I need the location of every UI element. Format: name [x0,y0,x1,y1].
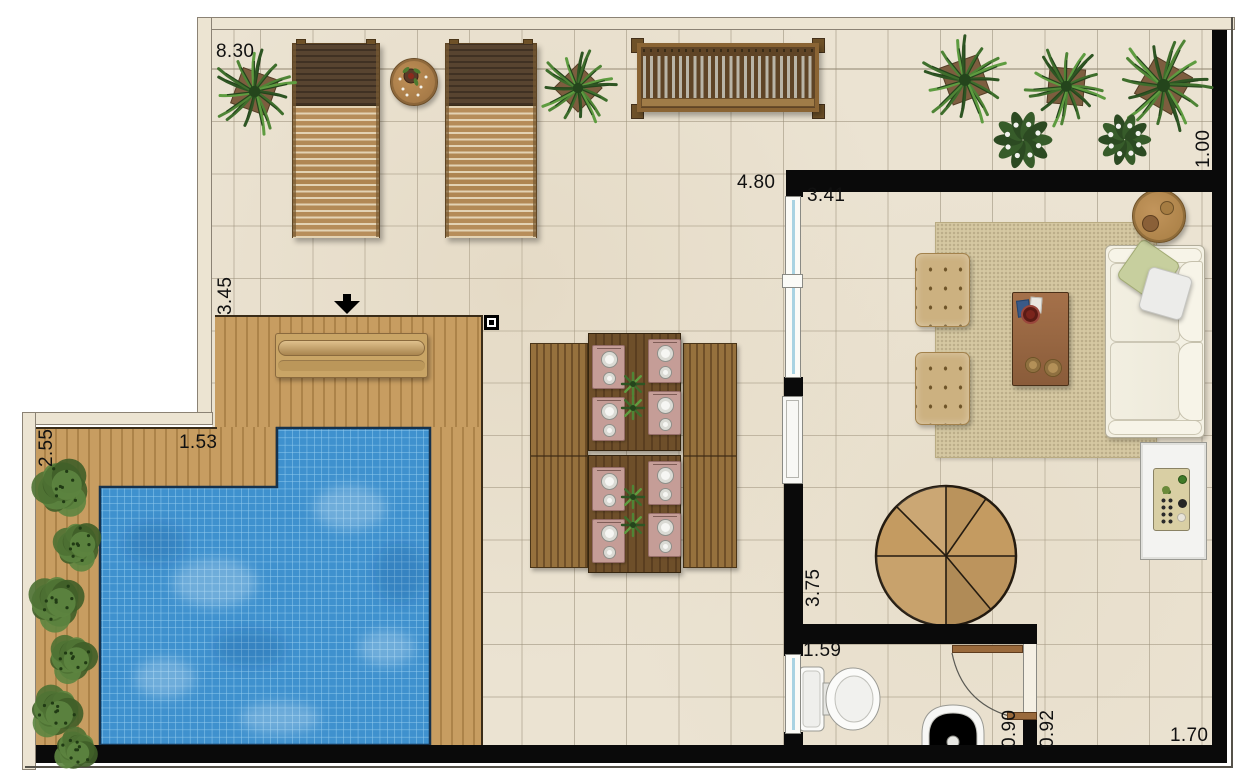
floor-plan-canvas: 8.30 1.00 4.80 3.41 3.45 2.55 1.53 3.75 … [0,0,1250,775]
plate [603,424,616,437]
flowering-plant-icon [1095,110,1154,169]
plate [657,397,674,414]
plate [603,546,616,559]
dim-living-height: 3.75 [804,569,823,607]
dim-top-width: 8.30 [216,42,254,61]
utility-panel [1140,442,1207,560]
plan-border-notch [22,412,213,425]
tray [1021,305,1040,324]
dim-right-offset: 1.00 [1194,130,1213,168]
window-mullion [782,274,803,288]
column-marker-icon [484,315,499,330]
lounger-headrest [293,44,379,106]
swimming-pool [95,423,435,750]
sun-lounger [445,43,537,238]
plan-outline-bottom [25,766,1233,768]
plan-outline-right [1231,17,1233,768]
palm-plant-icon [532,42,624,134]
dining-bench [683,343,737,568]
dining-bench [530,343,588,568]
door-opening [1023,644,1037,716]
sofa-armrest [1108,420,1202,435]
plate [659,366,672,379]
plate [601,525,618,542]
table-plant-icon [620,395,646,421]
rolled-pillow [278,340,425,356]
toilet [797,660,882,740]
bowl [1160,201,1174,215]
plate [601,473,618,490]
plate [657,519,674,536]
plate [601,351,618,368]
bowl [1025,357,1041,373]
wall-post [784,377,803,398]
intercom-device [1153,468,1190,531]
plate [659,418,672,431]
dim-bathroom-width: 1.59 [803,641,841,660]
bowl [1142,215,1159,232]
table-plant-icon [620,484,646,510]
speaker-icon [1162,486,1170,494]
lounger-slats [446,106,536,238]
plate [659,488,672,501]
bench-slats [643,56,813,100]
sofa-seat [1110,342,1180,420]
ottoman [915,253,970,327]
knob-icon [1178,499,1187,508]
place-setting [648,513,681,557]
place-setting [648,391,681,435]
dim-terrace-corner: 1.70 [1170,726,1208,745]
lounger-headrest [446,44,536,106]
plate [603,494,616,507]
plate [657,467,674,484]
led-icon [1178,475,1187,484]
spiral-staircase [872,482,1020,630]
place-setting [648,339,681,383]
dim-deck-height: 3.45 [216,277,235,315]
ottoman [915,352,970,425]
bowl [1044,359,1062,377]
dim-living-width: 3.41 [807,186,845,205]
plate [603,372,616,385]
place-setting [648,461,681,505]
coffee-table [1012,292,1069,386]
flowering-plant-icon [990,107,1056,173]
slatted-bench [633,40,823,115]
sofa-backrest [1178,342,1203,421]
plate [601,403,618,420]
table-plant-icon [620,371,646,397]
dim-passage-width: 0.92 [1038,710,1057,748]
button-icon [1177,513,1186,522]
plate [657,345,674,362]
keypad-icon [1160,497,1174,525]
wall-top [786,170,1227,192]
deck-mattress [275,333,428,378]
dim-bathroom-door: 0.90 [1000,710,1019,748]
lounger-slats [293,106,379,238]
round-patio-table [390,58,438,106]
plate [659,540,672,553]
plan-border-top [197,17,1235,30]
table-plant-icon [620,512,646,538]
dim-terrace-opening: 4.80 [737,173,775,192]
hedge-bush-icon [47,721,105,775]
round-side-table [1132,189,1186,243]
dim-deck-strip: 1.53 [179,433,217,452]
sliding-door-open [782,396,803,484]
dim-pool-side: 2.55 [37,429,56,467]
entry-arrow-icon [334,294,360,314]
wall-corner [786,170,803,197]
bathroom-window [785,654,801,734]
